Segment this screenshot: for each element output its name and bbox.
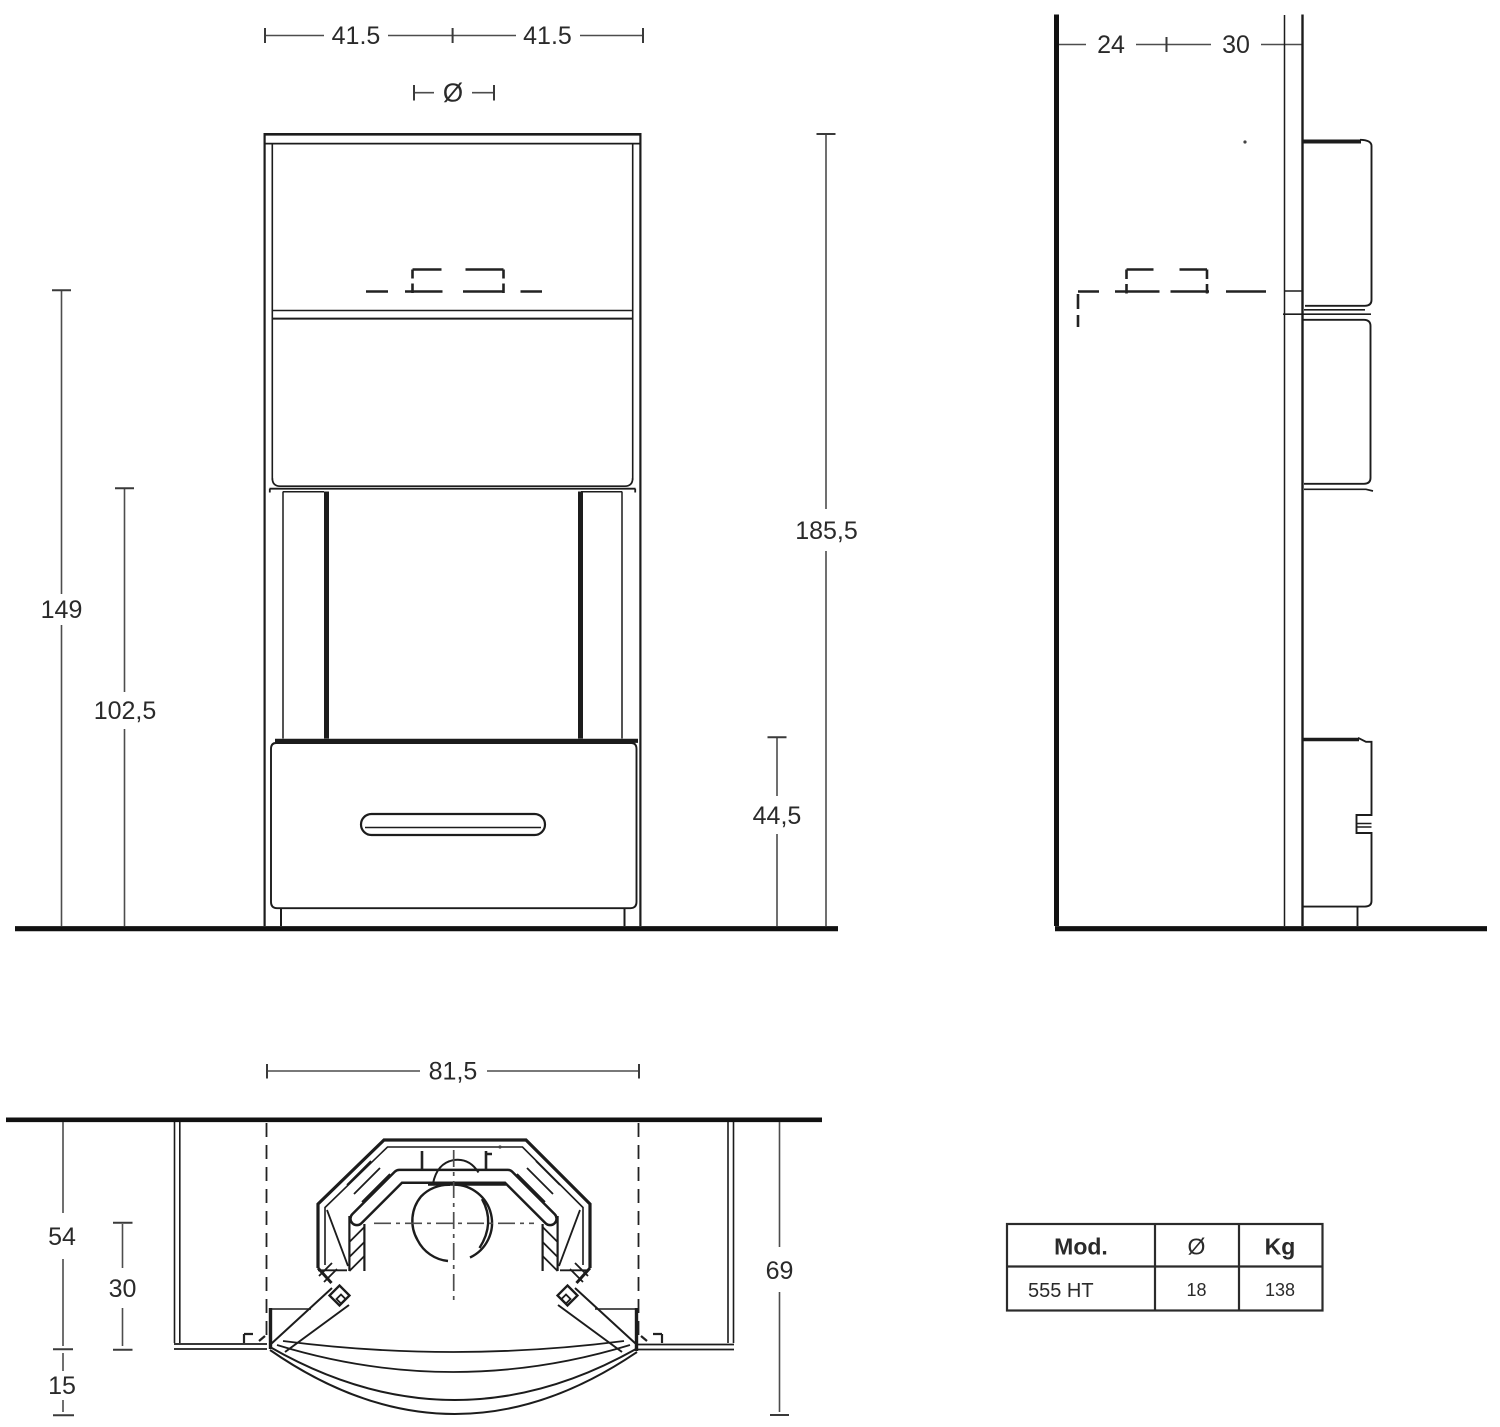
svg-text:102,5: 102,5 [94,697,157,725]
svg-text:30: 30 [109,1275,137,1303]
svg-text:18: 18 [1186,1280,1206,1300]
svg-text:555 HT: 555 HT [1028,1280,1094,1302]
svg-text:44,5: 44,5 [753,802,802,830]
svg-text:24: 24 [1097,31,1125,59]
svg-text:185,5: 185,5 [795,517,858,545]
svg-text:69: 69 [766,1257,794,1285]
svg-text:41.5: 41.5 [523,22,572,50]
svg-text:Mod.: Mod. [1054,1234,1108,1260]
svg-text:41.5: 41.5 [332,22,381,50]
svg-text:138: 138 [1265,1280,1295,1300]
svg-text:149: 149 [41,596,83,624]
svg-text:Kg: Kg [1265,1234,1296,1260]
svg-text:15: 15 [48,1372,76,1400]
svg-text:81,5: 81,5 [429,1058,478,1086]
svg-text:54: 54 [48,1223,76,1251]
svg-text:30: 30 [1222,31,1250,59]
svg-text:Ø: Ø [1188,1234,1206,1260]
svg-text:Ø: Ø [443,78,463,108]
